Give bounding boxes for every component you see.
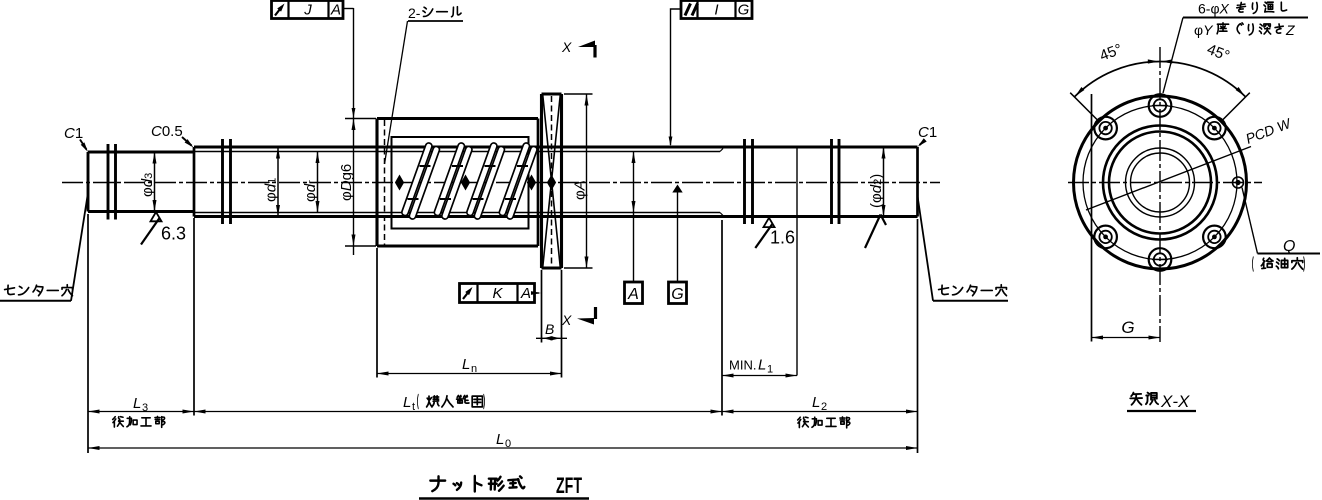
svg-text:G: G bbox=[1121, 318, 1134, 337]
svg-text:C0.5: C0.5 bbox=[151, 123, 183, 140]
svg-text:t: t bbox=[412, 401, 415, 413]
svg-text:0: 0 bbox=[505, 438, 511, 450]
svg-text:n: n bbox=[471, 363, 477, 375]
svg-text:Q: Q bbox=[1283, 238, 1295, 255]
svg-text:MIN.: MIN. bbox=[729, 358, 756, 373]
svg-text:G: G bbox=[671, 286, 683, 303]
svg-text:2: 2 bbox=[821, 401, 827, 413]
svg-text:X: X bbox=[561, 39, 572, 55]
svg-text:C1: C1 bbox=[918, 124, 937, 141]
svg-text:L: L bbox=[758, 357, 766, 374]
svg-text:φA: φA bbox=[572, 180, 589, 200]
svg-text:6.3: 6.3 bbox=[161, 224, 186, 244]
svg-text:A: A bbox=[330, 2, 341, 19]
svg-text:L: L bbox=[403, 394, 411, 411]
svg-text:J: J bbox=[303, 2, 312, 19]
svg-text:L: L bbox=[496, 431, 504, 448]
svg-text:φDg6: φDg6 bbox=[338, 164, 355, 201]
svg-text:B: B bbox=[545, 321, 554, 337]
svg-text:A: A bbox=[520, 285, 531, 302]
svg-text:A: A bbox=[627, 286, 639, 303]
svg-text:K: K bbox=[492, 285, 503, 302]
svg-text:X: X bbox=[561, 312, 572, 328]
svg-text:2-: 2- bbox=[408, 5, 421, 21]
svg-text:L: L bbox=[812, 394, 820, 411]
svg-text:I: I bbox=[714, 2, 718, 19]
svg-text:1: 1 bbox=[767, 364, 773, 376]
svg-text:L: L bbox=[133, 395, 141, 412]
svg-text:L: L bbox=[462, 356, 470, 373]
svg-text:G: G bbox=[738, 2, 750, 19]
svg-text:ZFT: ZFT bbox=[556, 473, 582, 498]
svg-text:1.6: 1.6 bbox=[770, 228, 795, 248]
svg-text:X-X: X-X bbox=[1160, 392, 1190, 411]
svg-text:3: 3 bbox=[142, 402, 148, 414]
svg-text:Z: Z bbox=[1285, 22, 1295, 38]
svg-text:6-φX: 6-φX bbox=[1198, 1, 1230, 17]
svg-text:(φd2): (φd2) bbox=[868, 174, 885, 208]
svg-text:φY: φY bbox=[1194, 22, 1214, 38]
